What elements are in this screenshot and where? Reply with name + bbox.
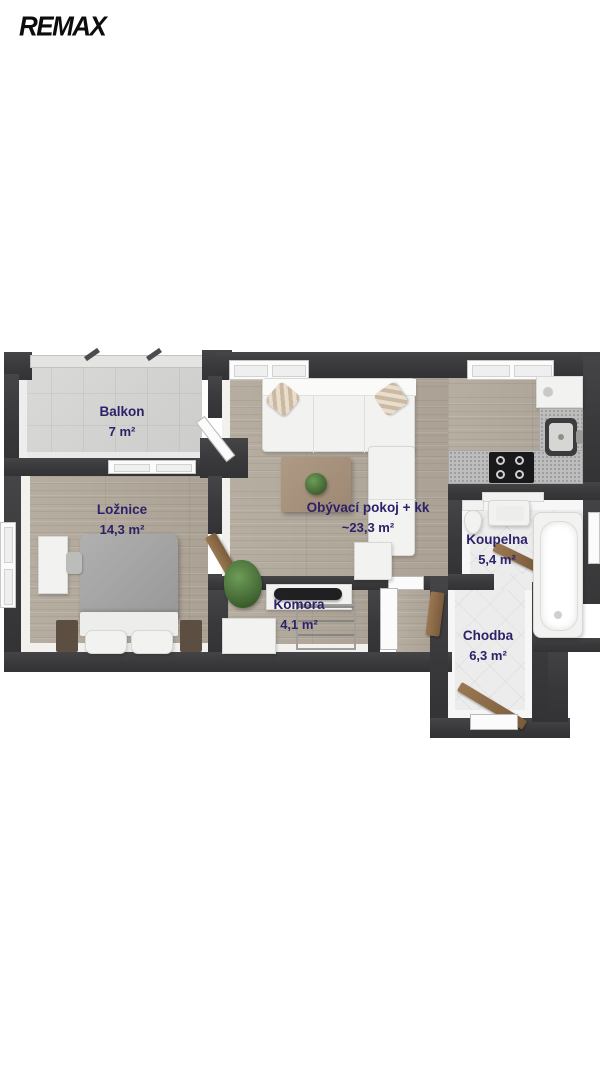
fridge [536,376,583,408]
cooktop [489,452,534,483]
living-room-window [229,360,309,380]
storage-door-open [380,588,398,650]
wall-bathroom-bottom [533,636,600,652]
washbasin [488,500,530,526]
wall-right-kitchen [583,356,600,486]
bedroom-desk [38,536,68,594]
tv-icon [274,588,342,600]
floor-plan: Balkon 7 m² Ložnice 14,3 m² Obývací poko… [0,0,607,1080]
bed-pillow [131,630,173,654]
nightstand [180,620,202,652]
bathtub [533,512,583,638]
passage-floor [396,590,430,652]
floor-plant-icon [224,560,262,608]
bathroom-right-window [588,512,600,564]
kitchen-faucet-icon [576,430,583,444]
nightstand [56,620,78,652]
wall-left-balcony [4,374,19,462]
balcony-railing [30,355,208,368]
wall-bathroom-left [448,500,462,576]
sofa-chaise [368,446,415,556]
living-cabinet [354,542,392,580]
balcony-floor [19,362,202,458]
entrance-threshold [470,714,518,730]
bed-pillow [85,630,127,654]
wall-bathroom-hallway [448,574,494,590]
storage-cabinet [222,618,276,654]
bed-duvet [80,534,178,618]
bathroom-door-threshold-floor [494,574,533,590]
bedroom-left-window [0,522,16,608]
wall-bottom-main [4,652,452,672]
wall-living-left-upper [208,376,222,418]
wall-storage-right [368,590,380,652]
wall-living-bedroom-a [208,476,222,534]
floor-plan-page: REMAX [0,0,607,1080]
bedroom-top-window [108,460,196,474]
storage-shelf-rack [296,604,356,650]
kitchen-sink [545,418,577,456]
table-plant-icon [305,473,327,495]
desk-chair [66,552,82,574]
